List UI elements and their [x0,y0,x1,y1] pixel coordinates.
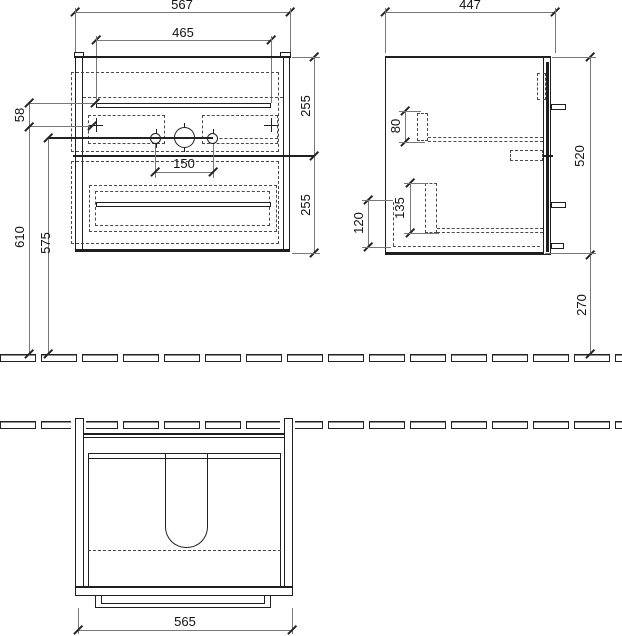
dim-line-565 [78,630,292,631]
dim-label-hole-offset: 58 [13,95,27,135]
extension-line [362,247,391,248]
side-top-edge [385,56,551,58]
upper-drawer-dashed-line [83,97,283,98]
dim-label-bottom-width: 565 [145,615,225,629]
dim-line-150 [155,172,213,173]
dim-label-side-runner-offset: 135 [393,188,407,228]
runner-lower-dashed [425,183,437,233]
wall-mount-pin-top [551,104,566,110]
plan-centerline-dashed [88,550,281,551]
plan-back-edge-inner [83,437,284,438]
front-bottom-edge [75,249,290,252]
lower-drawer-box-inner-dashed [95,191,270,226]
dim-line-80 [405,111,406,142]
dim-line-270 [590,255,591,355]
runner-upper-rail [428,141,543,142]
extension-line [292,57,320,58]
extension-line [545,253,596,254]
dim-line-520 [590,57,591,255]
dim-label-height-total: 610 [13,217,27,257]
dim-label-floor-clearance: 270 [575,285,589,325]
extension-line [555,8,556,53]
bracket-mid-dashed [510,150,543,161]
dim-label-hole-spacing: 150 [154,157,214,171]
plan-side-panel-left [75,418,84,587]
dim-line-610 [29,103,30,355]
side-bottom-dashed [393,246,540,247]
floor-hatch-line [0,354,622,362]
dim-line-465 [96,40,271,41]
dim-label-side-height: 520 [573,136,587,176]
dim-label-lower-section: 255 [299,185,313,225]
fixing-cross-right [271,118,272,132]
technical-drawing-canvas: 567 465 [0,0,622,636]
side-back-panel [546,62,549,252]
extension-line [404,183,427,184]
extension-line [75,8,76,52]
side-divider-stub [543,155,553,157]
wall-mount-pin-base [551,243,564,249]
extension-line [552,57,596,58]
dim-line-447 [385,12,555,13]
extension-line [290,8,291,52]
dim-label-side-top-offset: 80 [389,106,403,146]
extension-line [292,253,320,254]
wall-hatch-line [0,421,622,429]
bracket-top-dashed [537,73,546,100]
runner-upper-dashed [417,113,428,141]
side-bottom-edge [386,252,544,255]
plan-handle-recess-inner [101,596,265,604]
dim-label-side-depth: 447 [430,0,510,12]
dim-label-front-width-inner: 465 [143,26,223,40]
runner-lower-rail [437,232,543,233]
fixing-cross-left [96,118,97,132]
runner-upper-rail [428,137,543,138]
dim-line-567 [75,12,290,13]
hole-left [150,133,161,144]
dim-label-upper-section: 255 [299,86,313,126]
dim-line-120 [368,200,369,247]
dim-line-135 [410,183,411,233]
leader-hole-centerline [48,137,213,139]
runner-lower-rail [437,228,543,229]
extension-line [362,200,393,201]
hole-right [207,133,218,144]
plan-side-panel-right [284,418,293,587]
wall-mount-pin-bottom [551,202,566,208]
plan-front-edge-band [75,586,293,596]
upper-drawer-front-bar [96,103,271,108]
leader-drawer-top [29,103,97,104]
front-top-edge [75,56,290,58]
dim-label-height-holes: 575 [39,223,53,263]
siphon-cutout [165,454,208,548]
leader-fixing-hole [29,126,92,127]
dim-label-side-bottom-offset: 120 [352,203,366,243]
extension-line [385,8,386,53]
dim-label-front-width-outer: 567 [142,0,222,12]
extension-line [404,233,439,234]
plan-back-edge [83,433,284,435]
lower-drawer-front-bar [96,202,271,207]
